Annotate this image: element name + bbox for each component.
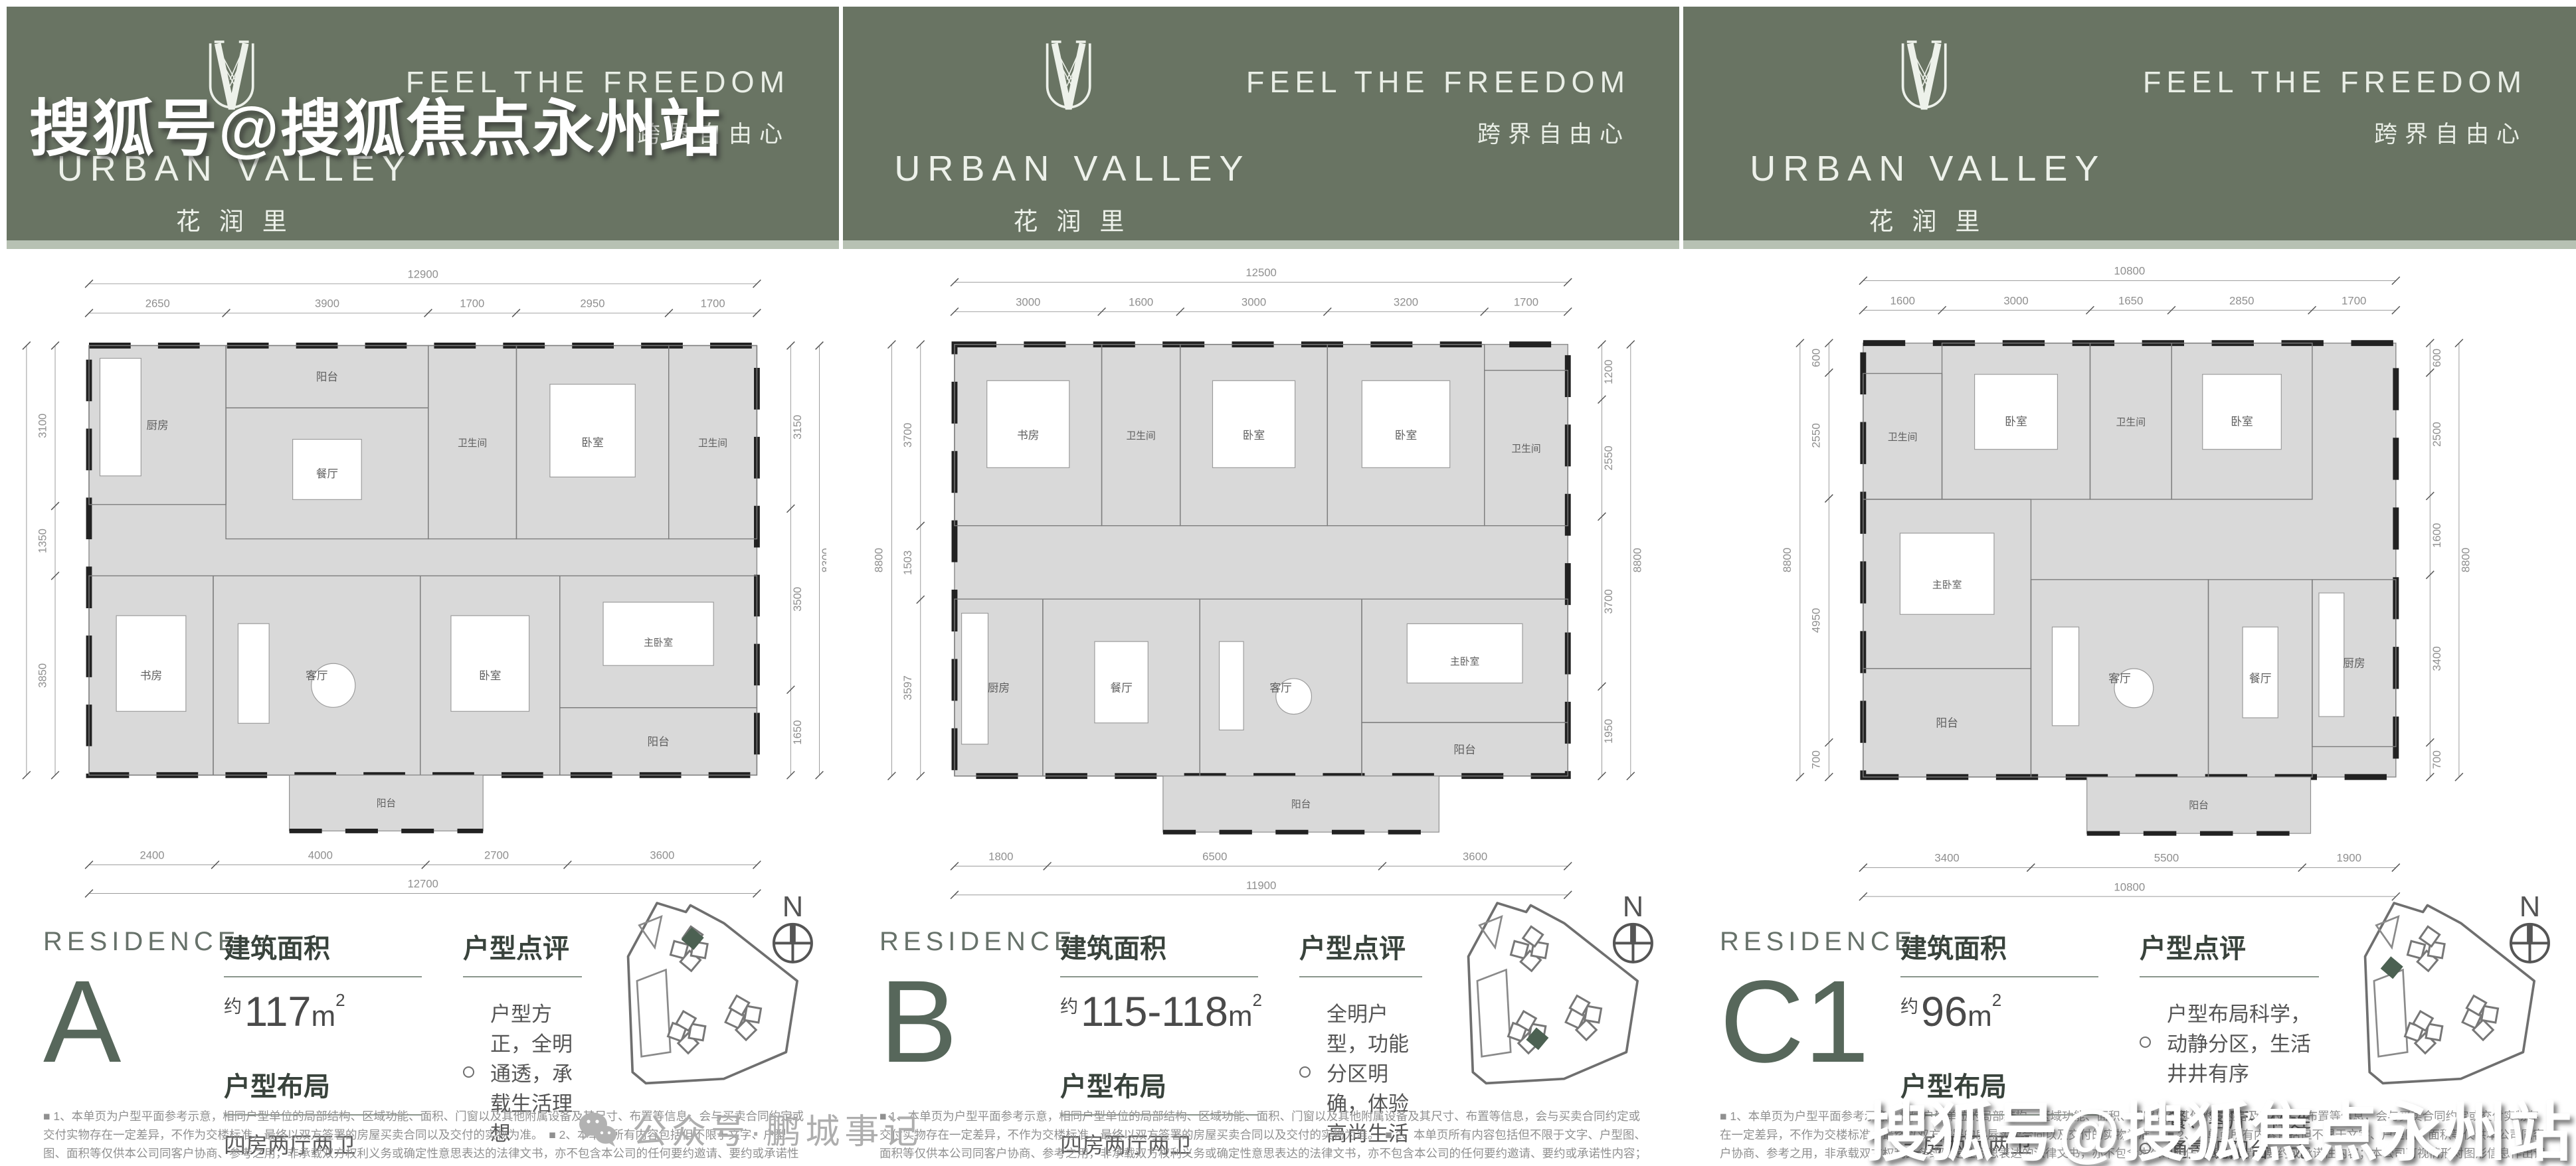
floorplan-area: 厨房阳台餐厅卫生间卧室卫生间书房客厅卧室主卧室阳台阳台1290026503900… bbox=[7, 258, 839, 922]
area-title: 建筑面积 bbox=[1060, 927, 1258, 977]
svg-text:3700: 3700 bbox=[901, 423, 914, 448]
slogan-block: FEEL THE FREEDOM 跨界自由心 bbox=[1246, 65, 1630, 149]
wechat-icon bbox=[577, 1108, 619, 1150]
svg-text:8300: 8300 bbox=[820, 548, 826, 572]
svg-text:阳台: 阳台 bbox=[2189, 800, 2209, 811]
svg-text:3400: 3400 bbox=[2431, 646, 2443, 671]
svg-text:卫生间: 卫生间 bbox=[1511, 444, 1540, 455]
svg-text:卧室: 卧室 bbox=[479, 669, 501, 682]
unit-info-row: RESIDENCE B 建筑面积 约115-118m2 户型布局 四房两厅两卫 … bbox=[879, 927, 1662, 1105]
area-title: 建筑面积 bbox=[224, 927, 422, 977]
floorplan-area: 书房卫生间卧室卧室卫生间厨房餐厅客厅主卧室阳台阳台125003000160030… bbox=[843, 258, 1679, 922]
svg-text:1350: 1350 bbox=[36, 529, 48, 553]
comments-title: 户型点评 bbox=[463, 927, 582, 977]
svg-text:3000: 3000 bbox=[1016, 296, 1040, 309]
svg-text:阳台: 阳台 bbox=[377, 797, 396, 809]
svg-text:11900: 11900 bbox=[1246, 879, 1276, 892]
svg-text:3150: 3150 bbox=[791, 415, 804, 440]
svg-text:8800: 8800 bbox=[1781, 548, 1794, 572]
svg-text:客厅: 客厅 bbox=[1269, 681, 1291, 694]
svg-text:1700: 1700 bbox=[1514, 296, 1538, 309]
unit-info-row: RESIDENCE C1 建筑面积 约96m2 户型布局 三房两厅两卫 户型点评… bbox=[1720, 927, 2559, 1105]
comments-title: 户型点评 bbox=[2140, 927, 2319, 977]
svg-text:厨房: 厨房 bbox=[146, 419, 168, 432]
area-approx: 约 bbox=[224, 997, 242, 1017]
area-approx: 约 bbox=[1060, 997, 1078, 1017]
svg-text:餐厅: 餐厅 bbox=[1110, 681, 1132, 694]
header-band-accent-strip bbox=[7, 240, 839, 249]
svg-text:3597: 3597 bbox=[901, 675, 914, 700]
svg-text:2850: 2850 bbox=[2229, 294, 2254, 307]
brand-name-en: URBAN VALLEY bbox=[843, 148, 1295, 189]
residence-letter: A bbox=[43, 963, 224, 1080]
header-band: URBAN VALLEY 花润里 FEEL THE FREEDOM 跨界自由心 bbox=[843, 7, 1679, 240]
svg-text:700: 700 bbox=[2431, 750, 2443, 769]
residence-label: RESIDENCE bbox=[879, 927, 1060, 957]
svg-text:12700: 12700 bbox=[407, 878, 438, 890]
bullet-circle-icon bbox=[2140, 1037, 2151, 1048]
svg-text:10800: 10800 bbox=[2114, 880, 2146, 893]
svg-text:卧室: 卧室 bbox=[1395, 429, 1417, 442]
svg-text:客厅: 客厅 bbox=[2108, 672, 2131, 685]
svg-text:1800: 1800 bbox=[988, 851, 1013, 863]
svg-text:1600: 1600 bbox=[1890, 294, 1915, 307]
disclaimer-text: ■ 1、本单页为户型平面参考示意，相同户型单位的局部结构、区域功能、面积、门窗以… bbox=[879, 1107, 1649, 1166]
svg-text:阳台: 阳台 bbox=[1453, 743, 1475, 756]
svg-text:1900: 1900 bbox=[2337, 852, 2361, 865]
residence-letter: C1 bbox=[1720, 963, 1900, 1080]
wechat-account-text: 公众号·鹏城事记 bbox=[632, 1104, 923, 1153]
area-unit: m bbox=[1228, 1000, 1253, 1033]
svg-text:N: N bbox=[1623, 896, 1643, 923]
slogan-en: FEEL THE FREEDOM bbox=[1246, 65, 1630, 100]
svg-text:N: N bbox=[782, 896, 803, 923]
brand-block: URBAN VALLEY 花润里 bbox=[1683, 39, 2165, 237]
svg-text:厨房: 厨房 bbox=[2343, 657, 2365, 670]
svg-text:书房: 书房 bbox=[1017, 429, 1039, 442]
svg-text:3200: 3200 bbox=[1394, 296, 1418, 309]
floorplan-drawing: 卫生间卧室卫生间卧室主卧室阳台客厅餐厅厨房阳台10800160030001650… bbox=[1697, 258, 2563, 922]
flyer-page: URBAN VALLEY 花润里 FEEL THE FREEDOM 跨界自由心 … bbox=[0, 0, 2576, 1166]
svg-text:1650: 1650 bbox=[2118, 294, 2143, 307]
svg-text:8300: 8300 bbox=[19, 548, 20, 572]
residence-letter: B bbox=[879, 963, 1060, 1080]
svg-text:600: 600 bbox=[2431, 349, 2443, 367]
residence-column: RESIDENCE C1 bbox=[1720, 927, 1900, 1080]
brand-block: URBAN VALLEY 花润里 bbox=[843, 39, 1295, 237]
svg-text:主卧室: 主卧室 bbox=[1450, 656, 1479, 667]
svg-text:阳台: 阳台 bbox=[1936, 716, 1958, 729]
brand-name-en: URBAN VALLEY bbox=[1683, 148, 2165, 189]
svg-text:2700: 2700 bbox=[484, 849, 509, 862]
siteplan-column: N bbox=[599, 896, 822, 1119]
bullet-circle-icon bbox=[463, 1066, 474, 1078]
svg-text:8800: 8800 bbox=[873, 548, 885, 572]
svg-text:700: 700 bbox=[1810, 750, 1823, 769]
floorplan-drawing: 书房卫生间卧室卧室卫生间厨房餐厅客厅主卧室阳台阳台125003000160030… bbox=[856, 258, 1667, 922]
svg-text:书房: 书房 bbox=[140, 669, 162, 682]
svg-text:3600: 3600 bbox=[650, 849, 674, 862]
comment-item: 户型布局科学，动静分区，生活井井有序 bbox=[2140, 997, 2319, 1087]
svg-text:1600: 1600 bbox=[2431, 523, 2443, 548]
siteplan-diagram: N bbox=[599, 896, 822, 1119]
brand-name-cn: 花润里 bbox=[1683, 201, 2165, 237]
svg-text:3000: 3000 bbox=[2003, 294, 2028, 307]
svg-text:1700: 1700 bbox=[700, 297, 725, 310]
comment-text: 户型布局科学，动静分区，生活井井有序 bbox=[2167, 997, 2319, 1087]
svg-text:卧室: 卧室 bbox=[2231, 415, 2253, 428]
svg-text:1600: 1600 bbox=[1129, 296, 1153, 309]
svg-text:6500: 6500 bbox=[1202, 851, 1227, 863]
svg-text:客厅: 客厅 bbox=[306, 669, 327, 682]
floorplan-drawing: 厨房阳台餐厅卫生间卧室卫生间书房客厅卧室主卧室阳台阳台1290026503900… bbox=[19, 258, 826, 922]
area-superscript: 2 bbox=[335, 990, 345, 1010]
svg-text:阳台: 阳台 bbox=[647, 735, 669, 748]
svg-text:主卧室: 主卧室 bbox=[644, 637, 673, 648]
svg-text:600: 600 bbox=[1810, 349, 1823, 367]
area-unit: m bbox=[311, 1000, 335, 1033]
header-band: URBAN VALLEY 花润里 FEEL THE FREEDOM 跨界自由心 bbox=[1683, 7, 2576, 240]
area-superscript: 2 bbox=[1253, 990, 1262, 1010]
svg-text:餐厅: 餐厅 bbox=[316, 467, 338, 480]
slogan-block: FEEL THE FREEDOM 跨界自由心 bbox=[2143, 65, 2527, 149]
slogan-cn: 跨界自由心 bbox=[2143, 116, 2527, 149]
brand-name-cn: 花润里 bbox=[7, 201, 456, 237]
area-value-line: 约115-118m2 bbox=[1060, 988, 1258, 1036]
svg-text:卫生间: 卫生间 bbox=[2116, 416, 2146, 428]
slogan-en: FEEL THE FREEDOM bbox=[2143, 65, 2527, 100]
svg-text:卧室: 卧室 bbox=[2005, 415, 2027, 428]
header-band-accent-strip bbox=[1683, 240, 2576, 249]
svg-text:2400: 2400 bbox=[139, 849, 164, 862]
svg-text:2650: 2650 bbox=[145, 297, 170, 310]
svg-text:N: N bbox=[2520, 896, 2540, 923]
area-number: 96 bbox=[1921, 989, 1968, 1035]
svg-text:12500: 12500 bbox=[1245, 266, 1277, 279]
wechat-account-badge: 公众号·鹏城事记 bbox=[577, 1104, 923, 1153]
residence-column: RESIDENCE B bbox=[879, 927, 1060, 1080]
svg-text:1950: 1950 bbox=[1602, 719, 1615, 744]
floorplan-area: 卫生间卧室卫生间卧室主卧室阳台客厅餐厅厨房阳台10800160030001650… bbox=[1683, 258, 2576, 922]
svg-text:2550: 2550 bbox=[1602, 446, 1615, 470]
svg-text:1700: 1700 bbox=[2342, 294, 2366, 307]
svg-text:阳台: 阳台 bbox=[1291, 799, 1311, 810]
svg-text:12900: 12900 bbox=[407, 268, 438, 281]
svg-text:3500: 3500 bbox=[791, 587, 804, 612]
svg-text:8800: 8800 bbox=[2460, 548, 2472, 572]
svg-text:1650: 1650 bbox=[791, 720, 804, 745]
svg-text:卫生间: 卫生间 bbox=[1888, 432, 1918, 443]
area-approx: 约 bbox=[1900, 997, 1918, 1017]
svg-text:卧室: 卧室 bbox=[1243, 429, 1265, 442]
residence-label: RESIDENCE bbox=[43, 927, 224, 957]
area-number: 115-118 bbox=[1081, 989, 1228, 1035]
bullet-circle-icon bbox=[1299, 1066, 1311, 1078]
panel-residence-a: URBAN VALLEY 花润里 FEEL THE FREEDOM 跨界自由心 … bbox=[7, 7, 839, 1166]
sohu-watermark-bottom: 搜狐号@搜狐焦点永州站 bbox=[1865, 1081, 2572, 1166]
panel-residence-b: URBAN VALLEY 花润里 FEEL THE FREEDOM 跨界自由心 … bbox=[843, 7, 1679, 1166]
svg-text:卧室: 卧室 bbox=[581, 436, 603, 449]
svg-text:3000: 3000 bbox=[1242, 296, 1266, 309]
urban-valley-logo-icon bbox=[1683, 39, 2165, 140]
svg-text:2500: 2500 bbox=[2431, 422, 2443, 446]
svg-text:餐厅: 餐厅 bbox=[2249, 672, 2272, 685]
svg-text:4000: 4000 bbox=[308, 849, 333, 862]
svg-text:5500: 5500 bbox=[2154, 852, 2179, 865]
svg-text:2950: 2950 bbox=[580, 297, 604, 310]
svg-text:3700: 3700 bbox=[1602, 589, 1615, 614]
area-unit: m bbox=[1968, 1000, 1992, 1033]
svg-text:3900: 3900 bbox=[315, 297, 339, 310]
svg-text:8800: 8800 bbox=[1631, 548, 1643, 572]
area-number: 117 bbox=[244, 989, 311, 1035]
svg-text:卫生间: 卫生间 bbox=[698, 438, 727, 449]
comments-title: 户型点评 bbox=[1299, 927, 1422, 977]
svg-text:2550: 2550 bbox=[1810, 423, 1823, 448]
unit-info-row: RESIDENCE A 建筑面积 约117m2 户型布局 四房两厅两卫 户型点评… bbox=[43, 927, 822, 1105]
svg-text:厨房: 厨房 bbox=[988, 681, 1010, 694]
svg-text:卫生间: 卫生间 bbox=[458, 438, 487, 449]
svg-text:4950: 4950 bbox=[1810, 608, 1823, 633]
svg-text:3400: 3400 bbox=[1935, 852, 1960, 865]
brand-name-cn: 花润里 bbox=[843, 201, 1295, 237]
svg-text:阳台: 阳台 bbox=[316, 371, 338, 383]
svg-text:1200: 1200 bbox=[1602, 360, 1615, 384]
svg-text:主卧室: 主卧室 bbox=[1932, 579, 1962, 590]
svg-text:10800: 10800 bbox=[2114, 265, 2146, 278]
svg-text:1700: 1700 bbox=[460, 297, 484, 310]
siteplan-diagram: N bbox=[1439, 896, 1662, 1119]
area-title: 建筑面积 bbox=[1900, 927, 2098, 977]
svg-text:卫生间: 卫生间 bbox=[1126, 430, 1155, 442]
area-value-line: 约117m2 bbox=[224, 988, 422, 1036]
slogan-cn: 跨界自由心 bbox=[1246, 116, 1630, 149]
siteplan-column: N bbox=[1439, 896, 1662, 1119]
header-band-accent-strip bbox=[843, 240, 1679, 249]
svg-text:3600: 3600 bbox=[1463, 851, 1487, 863]
urban-valley-logo-icon bbox=[843, 39, 1295, 140]
residence-label: RESIDENCE bbox=[1720, 927, 1900, 957]
svg-text:3100: 3100 bbox=[36, 414, 48, 438]
panel-residence-c1: URBAN VALLEY 花润里 FEEL THE FREEDOM 跨界自由心 … bbox=[1683, 7, 2576, 1166]
svg-text:3850: 3850 bbox=[36, 663, 48, 688]
area-superscript: 2 bbox=[1992, 990, 2001, 1010]
residence-column: RESIDENCE A bbox=[43, 927, 224, 1080]
area-value-line: 约96m2 bbox=[1900, 988, 2098, 1036]
svg-text:1503: 1503 bbox=[901, 550, 914, 575]
sohu-watermark-top: 搜狐号@搜狐焦点永州站 bbox=[29, 78, 722, 168]
